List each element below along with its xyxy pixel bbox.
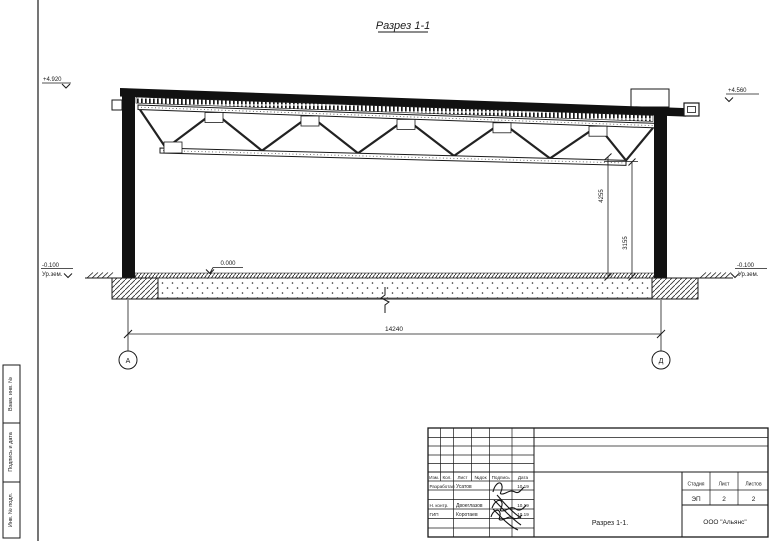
- company-name: ООО "Альянс": [703, 519, 747, 526]
- axis-left-label: А: [126, 358, 131, 365]
- floor-slab: [112, 273, 698, 299]
- ground-left-sub: Ур.зем.: [42, 272, 63, 278]
- drawing-sheet: Взам. инв. № Подпись и дата Инв. № подл.…: [0, 0, 773, 541]
- elevation-mark-top-left: +4.920: [42, 77, 71, 88]
- elevation-top-right-value: +4.560: [728, 88, 747, 94]
- axis-bubble-right: Д: [652, 351, 670, 369]
- ground-hatch-left: [85, 273, 113, 279]
- stage-label: Стадия: [687, 482, 704, 488]
- section-drawing: Взам. инв. № Подпись и дата Инв. № подл.…: [0, 0, 773, 541]
- foundation-right: [652, 278, 698, 299]
- col-kol: Кол.: [442, 475, 451, 480]
- dim-height-3155: 3155: [623, 159, 636, 281]
- stage-value: ЭП: [691, 496, 701, 503]
- dim-span-14240: 14240: [124, 300, 665, 351]
- col-data: Дата: [518, 475, 529, 480]
- gutter-detail-right: [684, 103, 699, 116]
- role-nkontr: Н. контр.: [430, 503, 449, 508]
- margin-label-podpis: Подпись и дата: [8, 431, 14, 471]
- elevation-mark-ground-left: -0.100 Ур.зем.: [41, 263, 73, 278]
- col-izm: Изм.: [429, 475, 439, 480]
- elevation-floor-value: 0.000: [220, 261, 236, 267]
- name-korotaev: Коротаев: [456, 512, 478, 518]
- titleblock-stage-section: Стадия Лист Листов ЭП 2 2: [687, 482, 761, 504]
- ground-hatch-right: [698, 273, 733, 279]
- role-gip: ГИП: [430, 512, 439, 517]
- section-title: Разрез 1-1: [376, 20, 431, 32]
- elevation-top-left-value: +4.920: [43, 77, 62, 83]
- dim-span-value: 14240: [385, 326, 403, 333]
- ground-right-sub: Ур.зем.: [738, 272, 759, 278]
- title-block: Изм. Кол. Лист №док Подпись Дата Разрабо…: [428, 428, 768, 537]
- axis-right-label: Д: [659, 358, 664, 365]
- column-right: [654, 113, 667, 278]
- section-title-text: Разрез 1-1: [376, 20, 431, 32]
- elevation-mark-ground-right: -0.100 Ур.зем.: [731, 263, 767, 278]
- date-nkontr: 10.19: [517, 503, 529, 508]
- margin-label-inv: Инв. № подл.: [8, 492, 14, 527]
- role-razrabotal: Разработал: [430, 484, 455, 489]
- sheets-total: 2: [752, 496, 756, 503]
- elevation-mark-top-right: +4.560: [725, 88, 759, 102]
- elevation-mark-floor: 0.000: [206, 261, 243, 274]
- column-left: [122, 95, 135, 278]
- sheet-frame: Взам. инв. № Подпись и дата Инв. № подл.: [3, 0, 38, 541]
- parapet-outline: [631, 89, 669, 107]
- titleblock-header-row: Изм. Кол. Лист №док Подпись Дата: [429, 475, 528, 480]
- name-dvoeglazov: Двоеглазов: [456, 503, 483, 509]
- sheet-label: Лист: [719, 482, 731, 488]
- sheets-label: Листов: [745, 482, 762, 488]
- margin-label-vzam: Взам. инв. №: [8, 377, 14, 411]
- foundation-left: [112, 278, 158, 299]
- col-podpis: Подпись: [492, 475, 511, 480]
- axis-bubble-left: А: [119, 351, 137, 369]
- sheet-number: 2: [722, 496, 726, 503]
- titleblock-row-razrabotal: Разработал Усатов 10.19: [430, 484, 530, 490]
- floor-base-layer: [158, 278, 652, 298]
- doc-name: Разрез 1-1.: [592, 520, 628, 527]
- name-usatov: Усатов: [456, 484, 472, 490]
- col-list: Лист: [458, 475, 469, 480]
- eave-detail-left: [112, 100, 122, 110]
- floor-screed: [135, 273, 655, 278]
- dim-4255-value: 4255: [599, 189, 605, 203]
- truss-bottom-chord: [160, 148, 626, 165]
- dim-3155-value: 3155: [623, 236, 629, 250]
- building-structure: [85, 88, 733, 313]
- col-ndok: №док: [474, 475, 487, 480]
